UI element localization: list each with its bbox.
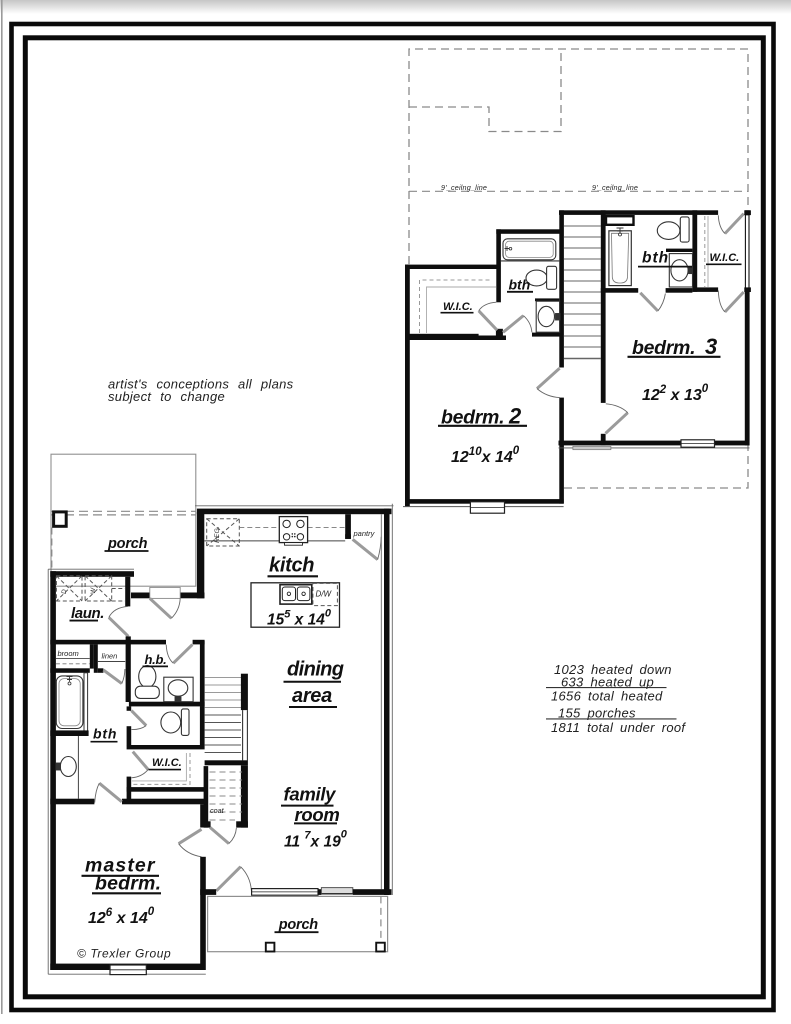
svg-text:linen: linen: [102, 652, 118, 661]
svg-text:155 x 140: 155 x 140: [267, 608, 332, 629]
svg-text:W.I.C.: W.I.C.: [443, 301, 473, 313]
svg-text:dining: dining: [287, 659, 344, 681]
svg-text:coat: coat: [210, 806, 225, 815]
svg-text:bth: bth: [509, 277, 531, 293]
svg-text:3: 3: [705, 334, 717, 359]
svg-text:room: room: [295, 804, 340, 825]
svg-text:1811 total under roof: 1811 total under roof: [551, 720, 686, 735]
svg-text:broom: broom: [58, 649, 79, 658]
svg-text:1210x 140: 1210x 140: [451, 445, 520, 466]
svg-text:bedrm.: bedrm.: [95, 873, 161, 895]
svg-text:kitch: kitch: [269, 555, 314, 577]
svg-text:122 x 130: 122 x 130: [642, 383, 709, 404]
svg-text:pantry: pantry: [353, 529, 376, 538]
svg-text:2: 2: [508, 403, 522, 428]
svg-text:D/W: D/W: [316, 590, 333, 599]
svg-text:h.b.: h.b.: [145, 652, 167, 667]
svg-text:area: area: [292, 685, 332, 707]
svg-text:W.I.C.: W.I.C.: [152, 757, 182, 769]
svg-text:© Trexler Group: © Trexler Group: [77, 947, 171, 961]
svg-text:porch: porch: [107, 536, 148, 552]
svg-text:D: D: [61, 589, 68, 594]
svg-text:W: W: [90, 587, 97, 594]
svg-text:subject to change: subject to change: [108, 389, 225, 404]
svg-text:family: family: [284, 784, 338, 805]
svg-text:bth: bth: [93, 725, 117, 741]
svg-text:126 x 140: 126 x 140: [88, 906, 155, 927]
svg-text:9'_ceilng_line: 9'_ceilng_line: [592, 183, 638, 192]
svg-text:W.I.C.: W.I.C.: [710, 252, 740, 264]
svg-text:1656 total heated: 1656 total heated: [551, 689, 663, 704]
svg-text:porch: porch: [278, 917, 319, 933]
svg-text:laun.: laun.: [71, 605, 104, 622]
svg-text:bth: bth: [642, 250, 669, 267]
svg-text:9'_ceilng_line: 9'_ceilng_line: [441, 183, 487, 192]
